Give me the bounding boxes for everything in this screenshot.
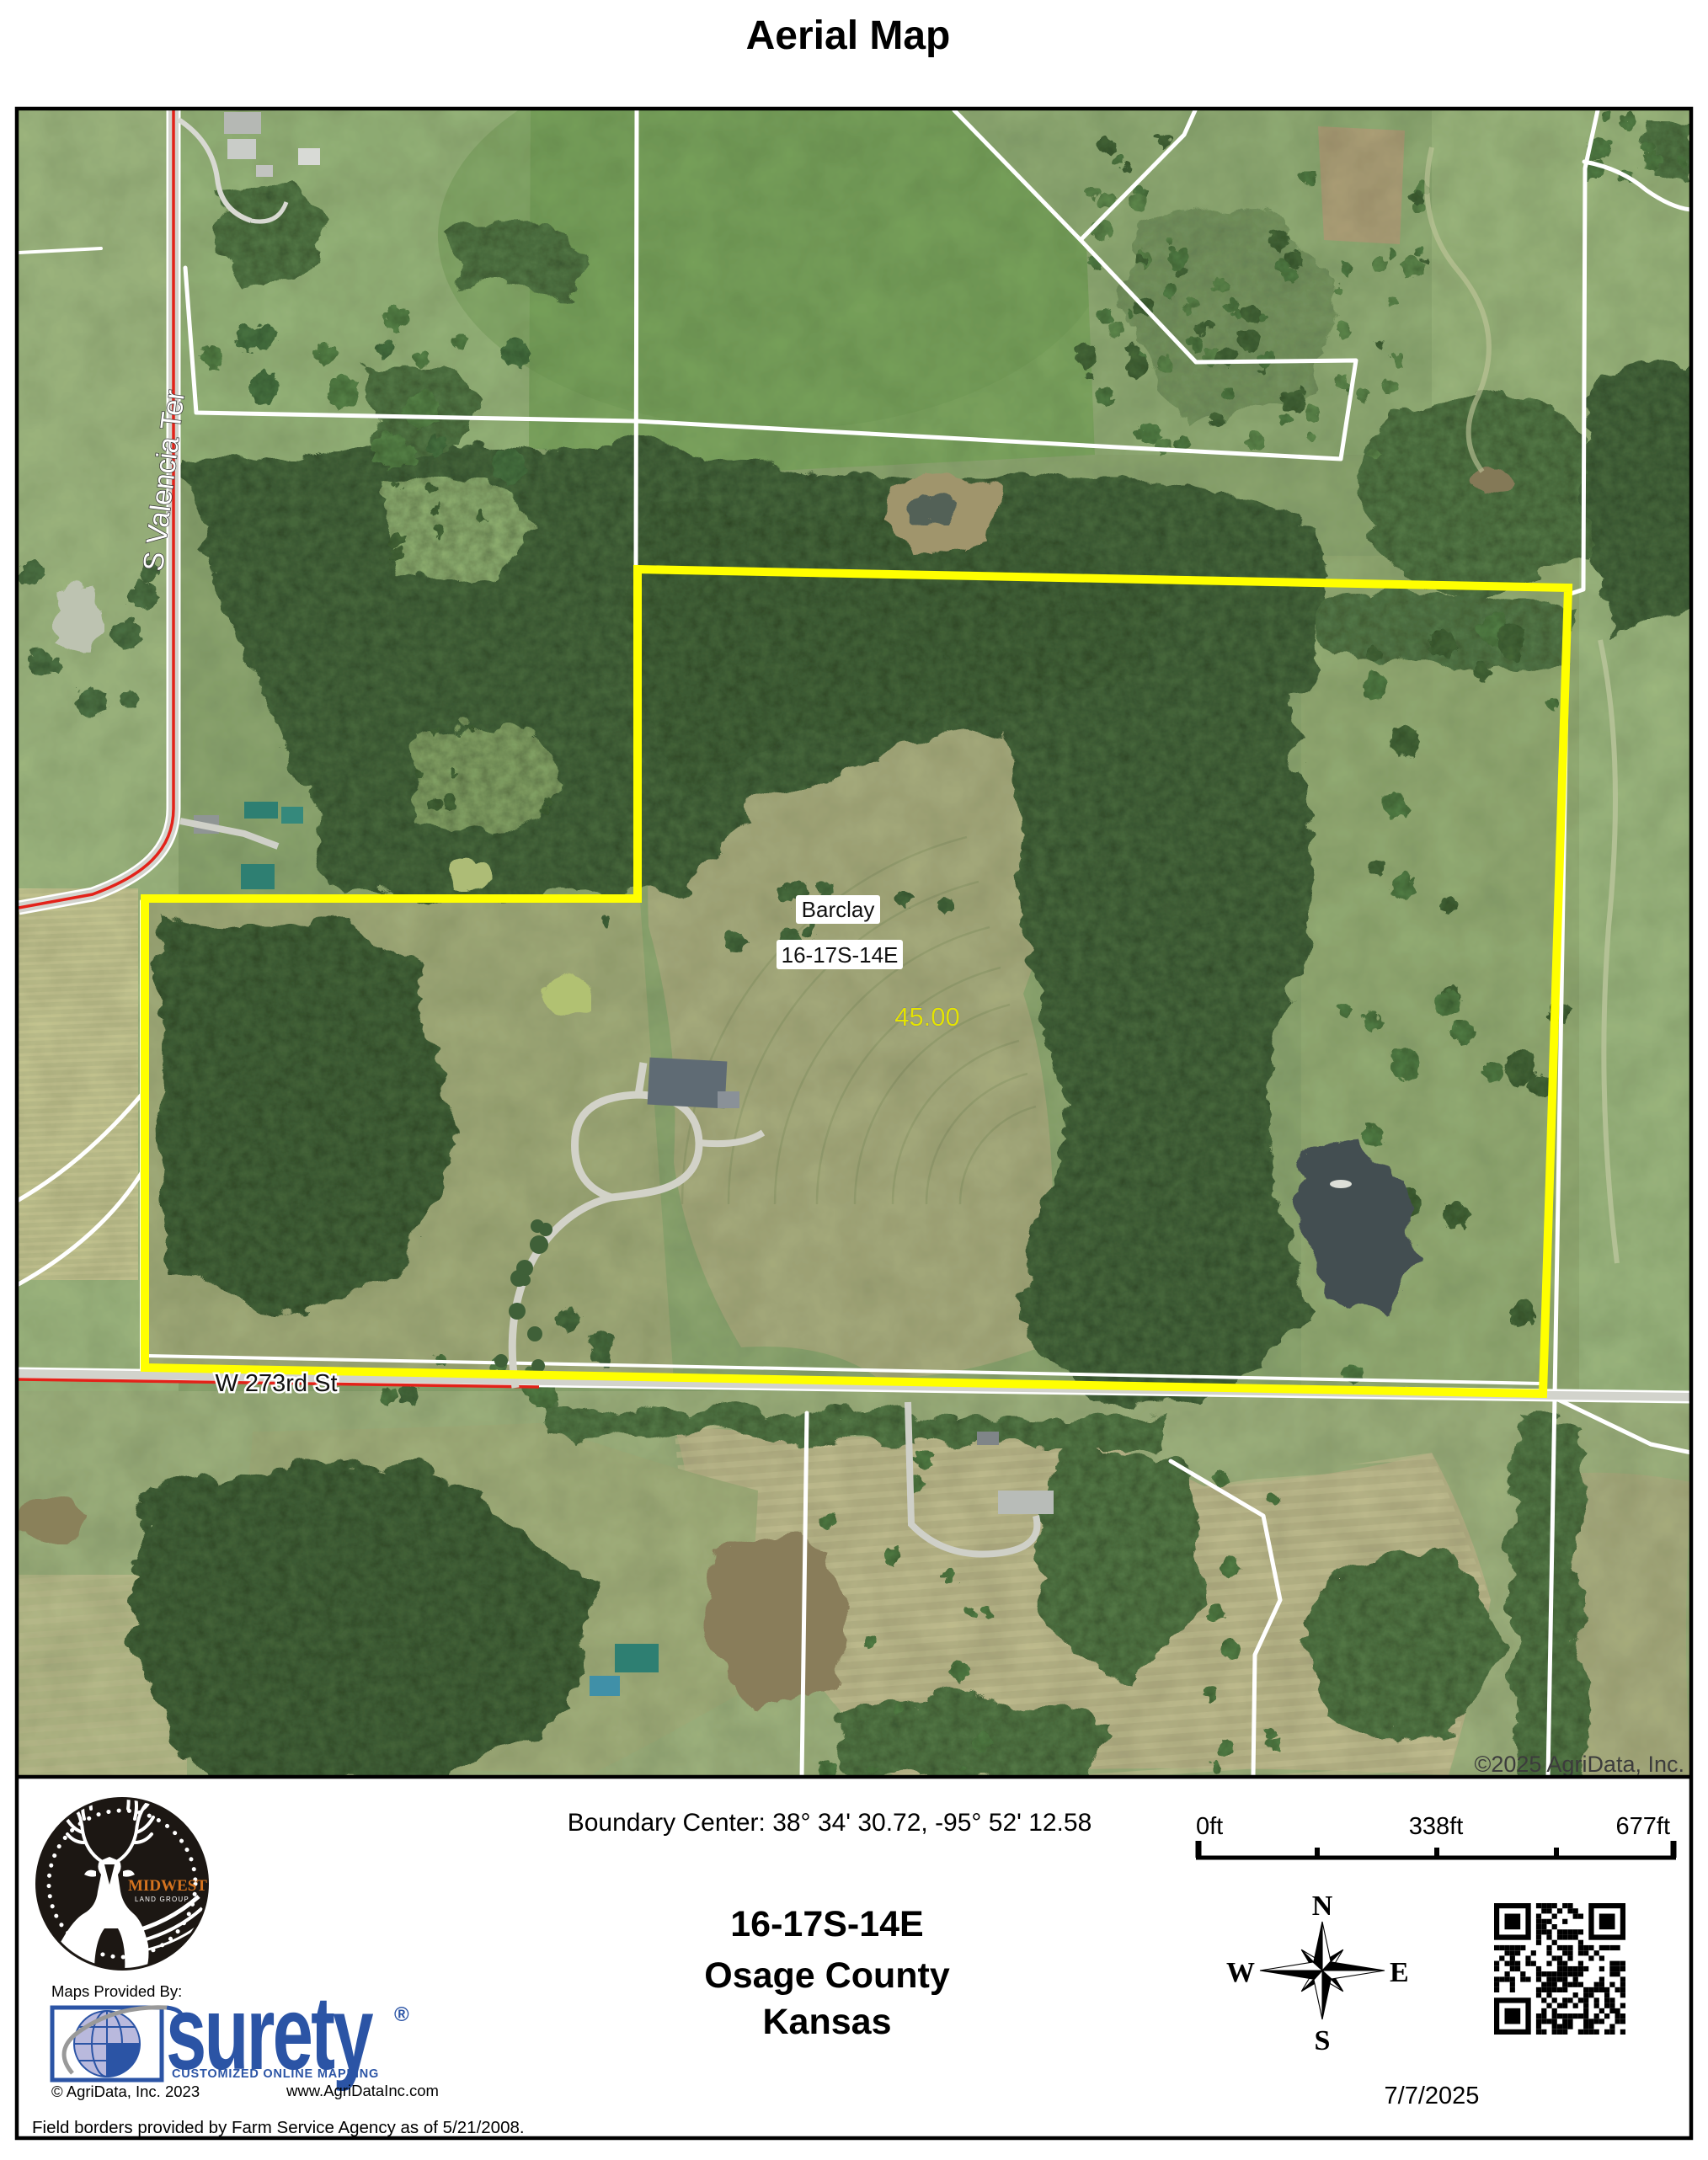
svg-text:Kansas: Kansas: [763, 2002, 892, 2042]
svg-text:Aerial Map: Aerial Map: [746, 13, 951, 58]
svg-text:N: N: [1312, 1891, 1333, 1922]
svg-text:S: S: [1315, 2025, 1331, 2056]
svg-text:338ft: 338ft: [1409, 1813, 1464, 1840]
svg-text:16-17S-14E: 16-17S-14E: [782, 942, 899, 968]
svg-text:45.00: 45.00: [894, 1002, 960, 1032]
svg-text:©2025 AgriData, Inc.: ©2025 AgriData, Inc.: [1474, 1752, 1684, 1777]
svg-text:Osage County: Osage County: [704, 1955, 950, 1996]
svg-text:0ft: 0ft: [1196, 1813, 1223, 1840]
svg-text:MIDWEST: MIDWEST: [128, 1877, 207, 1895]
svg-text:Boundary Center: 38° 34' 30.72: Boundary Center: 38° 34' 30.72, -95° 52'…: [568, 1809, 1092, 1837]
svg-text:CUSTOMIZED ONLINE MAPPING: CUSTOMIZED ONLINE MAPPING: [172, 2067, 379, 2081]
svg-text:7/7/2025: 7/7/2025: [1385, 2083, 1480, 2109]
svg-text:E: E: [1390, 1957, 1409, 1988]
svg-text:Field borders provided by Farm: Field borders provided by Farm Service A…: [32, 2118, 525, 2137]
svg-text:Maps Provided By:: Maps Provided By:: [51, 1982, 182, 2000]
svg-text:W: W: [1226, 1957, 1255, 1988]
svg-text:www.AgriDataInc.com: www.AgriDataInc.com: [286, 2082, 439, 2099]
svg-text:© AgriData, Inc. 2023: © AgriData, Inc. 2023: [51, 2083, 200, 2100]
svg-text:W 273rd St: W 273rd St: [215, 1370, 337, 1397]
svg-text:LAND GROUP: LAND GROUP: [135, 1896, 189, 1903]
svg-text:677ft: 677ft: [1616, 1813, 1671, 1840]
svg-text:Barclay: Barclay: [802, 897, 875, 922]
svg-text:®: ®: [394, 2003, 409, 2026]
svg-text:16-17S-14E: 16-17S-14E: [730, 1904, 924, 1944]
